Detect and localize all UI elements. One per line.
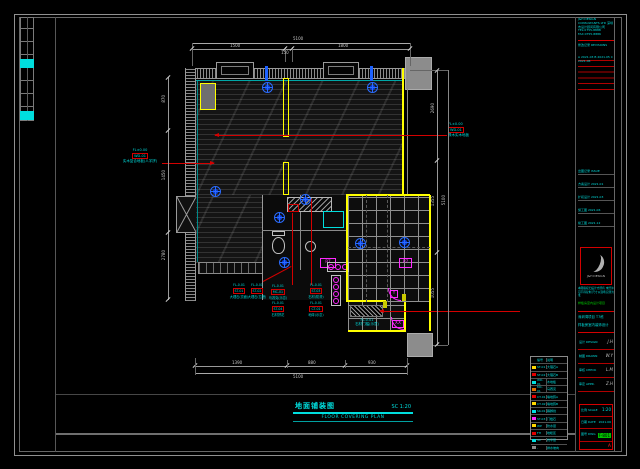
- mosaic-dot: [335, 264, 341, 270]
- dim-top-seg-1: 1500: [230, 44, 240, 48]
- tb-issue-header: 出图记录 ISSUE: [578, 170, 614, 175]
- callout-cluster-item: FL-0.01 MC-01 马赛克(示意): [266, 284, 290, 300]
- cluster-code: CT-01: [309, 306, 322, 312]
- legend-row: -排水坡向: [531, 444, 567, 451]
- cluster-desc: 石材(防滑): [308, 294, 323, 299]
- legend-code: ST-01: [537, 365, 547, 369]
- floor-fixture-icon: [262, 82, 273, 93]
- door-tag-y-text: Y: [393, 292, 396, 297]
- door-tag-y: Y: [390, 290, 398, 298]
- legend-row: MC-01马赛克: [531, 385, 567, 392]
- tb-logo-box: J&H DESIGN: [580, 247, 612, 285]
- wood-floor-main: [196, 80, 403, 195]
- tb-rev-rows: A 2021.03 B 2021.05 C 2021.06: [578, 55, 614, 64]
- frame-titleblock-right: [614, 17, 615, 452]
- legend-header-code: 编号: [537, 358, 547, 362]
- legend-code: WP: [537, 424, 547, 428]
- legend-row: FH地暖区: [531, 429, 567, 436]
- leader-left-line: [162, 163, 214, 164]
- legend-name: 大理石A: [547, 365, 567, 369]
- drawing-title-underline-2: [293, 421, 413, 422]
- dim-ext: [345, 360, 346, 368]
- tb-issue-row: 施工图 2021.06: [578, 209, 614, 214]
- legend-chip: [532, 410, 536, 413]
- tb-issue-row: 方案设计 2021.01: [578, 183, 614, 188]
- door-jamb-2: [402, 294, 406, 301]
- column-bottom-right: [407, 333, 433, 357]
- tb-rule: [578, 40, 614, 41]
- legend-code: CT-01: [537, 395, 547, 399]
- callout-left-desc: 实木复合地板(人字拼): [123, 159, 157, 163]
- dim-left-line: [168, 77, 169, 300]
- drawing-title: 地面铺装图 SC 1:20 FLOOR COVERING PLAN: [293, 401, 413, 421]
- legend-name: 马赛克: [547, 387, 567, 391]
- dim-ext: [195, 358, 196, 375]
- drawing-title-en: FLOOR COVERING PLAN: [293, 415, 413, 420]
- legend-chip: [532, 373, 536, 376]
- frame-divider-titleblock: [575, 17, 576, 452]
- bath-wall-left: [346, 195, 348, 302]
- tb-rev-header: 修改记录 REVISIONS: [578, 44, 614, 48]
- wall-left: [185, 68, 196, 301]
- tb-field-label: 设计 DESIGN: [579, 341, 598, 345]
- tb-field-value: J.H: [608, 340, 613, 345]
- shower-outline: [323, 211, 344, 228]
- callout-cluster-item: FL-0.01 CT-01 地砖(示意): [305, 301, 327, 317]
- toilet-bowl: [272, 237, 285, 254]
- legend-name: 地暖区: [547, 431, 567, 435]
- callout-right: FL±0.00 WD-01 橡木实木地板: [448, 122, 490, 138]
- dim-left-seg-1: 870: [162, 95, 166, 103]
- dim-ext: [287, 360, 288, 368]
- callout-cluster-item: FL-0.01 ST-03 石材(防滑): [305, 283, 327, 299]
- tb-date-row: 日期 DATE 2021.06: [580, 417, 612, 429]
- callout-left-elev: FL±0.00: [133, 148, 148, 152]
- cluster-desc: 马赛克(示意): [269, 295, 287, 300]
- drawing-title-underline: [293, 412, 413, 414]
- dim-left-seg-2: 1450: [162, 170, 166, 180]
- dim-top-seg-2: 150: [281, 51, 289, 55]
- drawing-title-cn: 地面铺装图: [295, 401, 335, 411]
- tb-dwg-label: 图号 DWG: [581, 433, 596, 437]
- legend-name: 防水层: [547, 424, 567, 428]
- reference-strip-midline: [27, 17, 28, 121]
- left-window-unit: [176, 196, 197, 233]
- cluster-code: ST-01: [233, 288, 246, 294]
- fixture-stem-1: [265, 66, 268, 81]
- floor-fixture-icon: [355, 238, 366, 249]
- legend-name: 墙地砖B: [547, 402, 567, 406]
- dim-bottom-seg-3: 930: [368, 361, 376, 365]
- tb-project-1: 深圳湾项目 T7栋: [578, 314, 614, 319]
- callout-threshold: FL-0.01 石材门槛(示意): [348, 318, 386, 326]
- tb-logo-caption: J&H DESIGN: [587, 274, 605, 278]
- legend-code: ST-02: [537, 373, 547, 377]
- cluster-code: ST-04: [272, 306, 285, 312]
- dim-ext: [407, 358, 408, 375]
- finish-tag-p7-b-text: P7: [403, 261, 409, 266]
- legend-row: WP防水层: [531, 422, 567, 429]
- legend-chip: [532, 417, 536, 420]
- tb-rule: [578, 311, 614, 312]
- cluster-elev: FL-0.01: [310, 301, 322, 305]
- door-leaf-2: [283, 162, 289, 195]
- tb-field-row: 审核 CHECK L.M: [578, 364, 614, 378]
- tb-bottom-box: 比例 SCALE 1:20 日期 DATE 2021.06 图号 DWG F-8…: [579, 404, 613, 450]
- wood-floor-lower-left: [196, 195, 262, 263]
- legend-code: MC-01: [537, 385, 547, 393]
- dim-right-total: 5100: [442, 195, 446, 205]
- callout-left: FL±0.00 WD-01 实木复合地板(人字拼): [118, 148, 162, 164]
- mosaic-strip-vertical: [331, 275, 341, 306]
- tb-stage: 样板房室内设计项目: [578, 301, 614, 305]
- cluster-code: MC-01: [271, 289, 285, 295]
- cluster-elev: FL-0.01: [272, 301, 284, 305]
- legend-chip: [532, 446, 536, 449]
- legend-chip: [532, 432, 536, 435]
- legend-chip: [532, 366, 536, 369]
- dim-bottom-seg-1: 1390: [232, 361, 242, 365]
- floor-fixture-icon: [367, 82, 378, 93]
- tb-field-label: 审核 CHECK: [579, 369, 596, 373]
- dim-bottom-total: 5100: [293, 375, 303, 379]
- legend-header-sym: [532, 359, 536, 362]
- callout-right-elev: FL±0.00: [448, 122, 463, 126]
- floor-fixture-icon: [274, 212, 285, 223]
- tb-scale-value: 1:20: [602, 408, 611, 413]
- leader-right-line: [215, 135, 447, 136]
- tb-rev-table: A 2021.03 B 2021.05 C 2021.06: [578, 55, 614, 90]
- callout-left-code: WD-01: [132, 153, 148, 159]
- legend-code: SK-01: [537, 409, 547, 413]
- floor-edge-left: [197, 81, 198, 262]
- dim-right-seg-line: [437, 70, 438, 345]
- tb-issue-row: 扩初设计 2021.03: [578, 196, 614, 201]
- legend-row: WD-01木地板: [531, 378, 567, 385]
- leader-threshold-line: [380, 311, 520, 312]
- callout-right-desc: 橡木实木地板: [448, 133, 469, 137]
- door-tag-xx-text: XX: [395, 322, 401, 327]
- door-leaf-1: [283, 78, 289, 137]
- cluster-desc: 石材拼花: [272, 312, 285, 317]
- dim-bottom-seg-2: 880: [308, 361, 316, 365]
- tb-field-row: 制图 DRAWN W.Y: [578, 350, 614, 364]
- legend-row: CT-01墙地砖A: [531, 392, 567, 399]
- legend-row: ST-03门槛石: [531, 414, 567, 421]
- floor-fixture-icon: [399, 237, 410, 248]
- reference-strip-highlight-1: [20, 59, 34, 68]
- leader-right-arrow: [214, 133, 219, 137]
- mosaic-dot: [333, 298, 339, 304]
- tb-rev-value: A: [608, 444, 611, 449]
- window-panel-1-inner: [221, 66, 249, 75]
- callout-cluster-item: FL-0.01 ST-04 石材拼花: [266, 301, 290, 317]
- legend-chip: [532, 381, 536, 384]
- toilet-tank: [272, 231, 285, 236]
- tb-rule: [578, 332, 614, 333]
- legend-name: 大理石B: [547, 373, 567, 377]
- door-frame-gray: [200, 83, 216, 110]
- tb-field-row: 审定 APPR. Z.H: [578, 378, 614, 392]
- legend-chip: [532, 439, 536, 442]
- cluster-elev: FL-0.01: [272, 284, 284, 288]
- cluster-elev: FL-0.01: [310, 283, 322, 287]
- cluster-desc: 地砖(示意): [308, 312, 323, 317]
- dim-right-total-line: [448, 70, 449, 345]
- tb-field-value: L.M: [606, 368, 613, 373]
- legend-row: ST-01大理石A: [531, 363, 567, 370]
- wall-right-line: [407, 68, 408, 195]
- legend-name: 找平层: [547, 438, 567, 442]
- legend-row: CT-02墙地砖B: [531, 400, 567, 407]
- legend-header-name: 说明: [547, 358, 567, 362]
- layout-line-lower: [56, 433, 575, 435]
- cluster-code: ST-02: [251, 288, 264, 294]
- leader-cluster-v1: [292, 213, 293, 285]
- tb-field-label: 审定 APPR.: [579, 383, 595, 387]
- dim-right-seg-1: 2690: [431, 103, 435, 113]
- mosaic-dot: [333, 277, 339, 283]
- frame-divider-left: [55, 17, 56, 452]
- tb-date-value: 2021.06: [599, 421, 611, 425]
- vestibule-wall-bottom: [348, 330, 406, 332]
- callout-cluster-item: FL-0.01 ST-02 大理石(拉槽): [246, 283, 268, 299]
- tb-company: J&H DESIGN CONSULTANTS LTD 深圳市设计顾问有限公司 T…: [578, 18, 614, 37]
- layout-line-upper: [56, 394, 575, 395]
- cluster-elev: FL-0.01: [233, 283, 245, 287]
- legend-code: FH: [537, 431, 547, 435]
- tb-dwg-value: F-801: [598, 433, 611, 438]
- tb-field-row: 设计 DESIGN J.H: [578, 336, 614, 350]
- dim-top-seg-line: [192, 49, 410, 50]
- legend-chip: [532, 402, 536, 405]
- dim-left-seg-3: 2780: [162, 250, 166, 260]
- leader-left-arrow: [210, 161, 215, 165]
- legend-chip: [532, 388, 536, 391]
- legend-row: SK-01踢脚线: [531, 407, 567, 414]
- fixture-stem-2: [370, 66, 373, 81]
- reference-strip-highlight-2: [20, 111, 34, 120]
- leader-threshold-arrow: [379, 309, 384, 313]
- dim-ext: [410, 70, 448, 71]
- tb-field-value: Z.H: [606, 382, 613, 387]
- legend-code: -: [537, 446, 547, 450]
- legend-code: SC: [537, 438, 547, 442]
- centerline-v1: [366, 195, 367, 302]
- mosaic-dot: [333, 291, 339, 297]
- cluster-desc: 大理石(拉槽): [248, 294, 266, 299]
- company-logo-icon: [585, 252, 607, 275]
- dim-top-total: 5100: [293, 37, 303, 41]
- legend-name: 木地板: [547, 380, 567, 384]
- bath-wall-top: [346, 194, 430, 196]
- floor-fixture-icon: [210, 186, 221, 197]
- tb-date-label: 日期 DATE: [581, 421, 596, 425]
- legend-name: 墙地砖A: [547, 395, 567, 399]
- tb-project-2: 样板房室内装饰设计: [578, 322, 614, 327]
- legend-name: 门槛石: [547, 417, 567, 421]
- dim-right-seg-3: 1055: [431, 288, 435, 298]
- callout-right-code: WD-01: [448, 127, 464, 133]
- cluster-code: ST-03: [310, 288, 323, 294]
- cad-sheet: P7 P7 Y XX FL±0.00 WD-01 实木复合地板(人字拼) FL±…: [0, 0, 640, 469]
- window-panel-1: [216, 62, 254, 79]
- legend-row: ST-02大理石B: [531, 371, 567, 378]
- tb-rev-row: A: [580, 442, 612, 451]
- legend-chip: [532, 424, 536, 427]
- tb-issue-row: 竣工图 2021.12: [578, 222, 614, 227]
- tb-notes: 本图版权归设计方所有 未经许可不得复制 尺寸以现场实测为准: [578, 287, 614, 298]
- tb-fields: 设计 DESIGN J.H 制图 DRAWN W.Y 审核 CHECK L.M …: [578, 336, 614, 392]
- door-tag-xx: XX: [392, 320, 404, 328]
- wall-right-yellow: [402, 68, 404, 195]
- tb-field-label: 制图 DRAWN: [579, 355, 597, 359]
- drawing-title-scale: SC 1:20: [392, 404, 411, 410]
- dim-bottom-seg-line: [195, 366, 407, 367]
- leader-cluster-v2: [311, 199, 312, 285]
- legend-name: 排水坡向: [547, 446, 567, 450]
- window-panel-2-inner: [328, 66, 354, 75]
- stair-red-marker: [288, 204, 299, 212]
- mosaic-dot: [328, 264, 334, 270]
- cluster-elev: FL-0.01: [251, 283, 263, 287]
- dim-top-total-line: [192, 43, 410, 44]
- window-panel-2: [323, 62, 359, 79]
- dim-ext: [292, 47, 293, 62]
- dim-right-seg-2: 1355: [431, 196, 435, 206]
- tb-scale-row: 比例 SCALE 1:20: [580, 405, 612, 417]
- legend-table: 编号 说明 ST-01大理石A ST-02大理石B WD-01木地板 MC-01…: [530, 356, 568, 440]
- centerline-v2: [387, 195, 388, 302]
- threshold-desc: 石材门槛(示意): [355, 322, 379, 326]
- tb-dwg-row: 图号 DWG F-801: [580, 429, 612, 442]
- vestibule-wall-right: [404, 302, 406, 332]
- legend-chip: [532, 395, 536, 398]
- legend-code: ST-03: [537, 417, 547, 421]
- floor-fixture-icon: [300, 194, 311, 205]
- dim-top-seg-3: 1800: [338, 44, 348, 48]
- tb-scale-label: 比例 SCALE: [581, 409, 598, 413]
- legend-code: CT-02: [537, 402, 547, 406]
- finish-tag-p7-b: P7: [399, 258, 412, 268]
- legend-row: SC找平层: [531, 436, 567, 443]
- door-jamb-1: [383, 301, 387, 308]
- legend-name: 踢脚线: [547, 409, 567, 413]
- tb-field-value: W.Y: [606, 354, 613, 359]
- mosaic-dot: [333, 284, 339, 290]
